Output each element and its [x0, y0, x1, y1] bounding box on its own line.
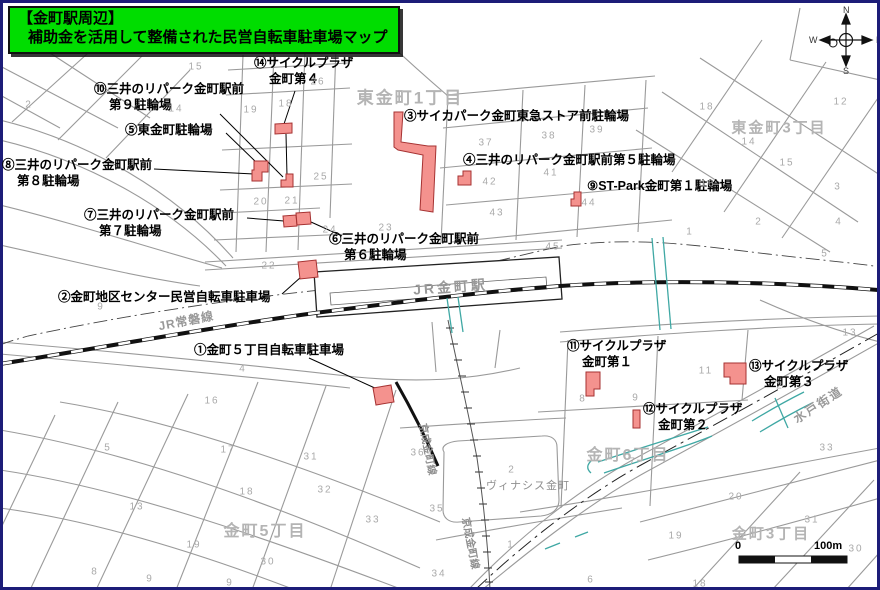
- map-title-line2: 補助金を活用して整備された民営自転車駐車場マップ: [28, 29, 388, 48]
- facility-marker-13: [724, 363, 746, 384]
- map-canvas: N S W E: [0, 0, 880, 590]
- facility-marker-5: [252, 161, 268, 181]
- leader-lines: [154, 91, 377, 389]
- facility-marker-3: [394, 112, 436, 212]
- facility-marker-11: [586, 372, 600, 396]
- facility-marker-1: [373, 385, 394, 405]
- facility-marker-7: [283, 215, 297, 227]
- compass-w: W: [809, 35, 818, 45]
- facility-marker-4: [458, 171, 471, 185]
- facility-marker-2: [298, 260, 318, 279]
- compass-icon: N S W E: [809, 5, 880, 76]
- map-title-line1: 【金町駅周辺】: [18, 10, 388, 29]
- facility-marker-14: [275, 123, 292, 134]
- railway-keisei: [396, 320, 493, 590]
- facility-marker-10: [281, 174, 293, 187]
- map-screenshot: N S W E JR金町駅 JR常磐線 京成金町線 京成金町線 水戸街道 ヴィナ…: [0, 0, 880, 590]
- scale-100m-label: 100m: [814, 540, 842, 552]
- scale-bar: [739, 556, 847, 563]
- facility-marker-6: [296, 212, 311, 225]
- scale-zero-label: 0: [735, 540, 741, 552]
- compass-s: S: [843, 66, 849, 76]
- facility-marker-12: [633, 410, 640, 428]
- map-title: 【金町駅周辺】 補助金を活用して整備された民営自転車駐車場マップ: [8, 6, 400, 54]
- compass-n: N: [843, 5, 850, 15]
